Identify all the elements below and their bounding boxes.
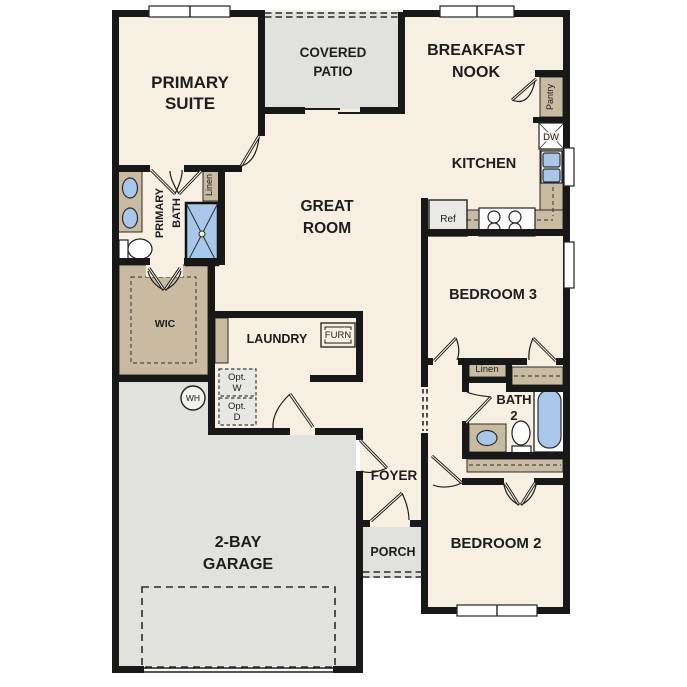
bedroom2-window [457,605,537,616]
primary-toilet-tank [119,240,128,259]
floor-plan-svg: PRIMARY SUITE COVERED PATIO BREAKFAST NO… [0,0,687,687]
bedroom3-label: BEDROOM 3 [449,287,537,303]
great-room-label2: ROOM [303,220,351,237]
bath2-toilet-bowl [512,421,530,445]
furnace-label: FURN [325,330,352,341]
primary-toilet-bowl [128,239,152,259]
bath2-toilet-tank [512,446,531,453]
breakfast-nook-label: BREAKFAST [427,42,525,59]
wic-label: WIC [155,318,176,330]
kitchen-label: KITCHEN [452,156,516,172]
floor-plan-image: PRIMARY SUITE COVERED PATIO BREAKFAST NO… [0,0,687,687]
laundry-label: LAUNDRY [247,332,308,346]
bath2-label2: 2 [510,408,517,423]
primary-suite-label: PRIMARY [151,73,229,92]
covered-patio-label2: PATIO [313,64,352,79]
dishwasher-label: DW [543,132,559,143]
refrigerator-label: Ref [440,214,456,225]
bath2-sink [477,431,497,446]
primary-bath-label2: BATH [171,198,183,228]
opt-washer-label2: W [233,383,242,394]
water-heater-label: WH [186,393,200,403]
primary-bath-label: PRIMARY [154,187,166,238]
kitchen-window [564,148,574,186]
kitchen-sink [541,151,562,183]
bedroom2-label: BEDROOM 2 [451,535,542,552]
bath2-tub [534,386,565,452]
primary-shower [186,203,218,265]
laundry-cabinet [215,318,228,363]
primary-linen-label: Linen [204,174,214,196]
breakfast-nook-label2: NOOK [452,64,500,81]
primary-suite-label2: SUITE [165,94,215,113]
primary-suite-window [149,6,230,17]
porch-label: PORCH [370,545,415,559]
covered-patio-label: COVERED [300,45,367,60]
great-room-label: GREAT [300,198,354,215]
primary-sink-1 [123,178,138,198]
bath2-label: BATH [496,392,531,407]
hall-linen-label: Linen [475,364,498,375]
pantry-label: Pantry [545,83,555,110]
breakfast-nook-window [440,6,514,17]
primary-sink-2 [123,208,138,228]
covered-patio-floor [263,12,400,109]
garage-label2: GARAGE [203,556,274,573]
garage-label: 2-BAY [215,534,262,551]
opt-dryer-label2: D [234,412,241,423]
bedroom3-window [564,242,574,288]
opt-washer-label: Opt. [228,372,246,383]
foyer-label: FOYER [371,468,418,483]
opt-dryer-label: Opt. [228,401,246,412]
